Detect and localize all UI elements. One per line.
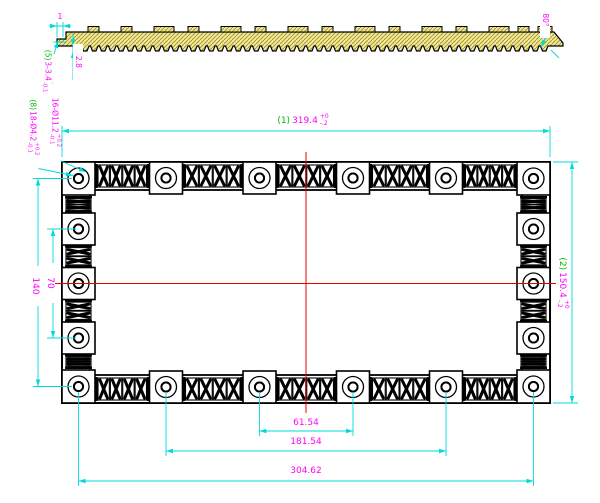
section-profile [57, 32, 563, 51]
dim-side-hole-span: 140 [30, 266, 40, 306]
boss [430, 162, 463, 194]
dim-bottom-hole-spacing: 61.54 [266, 417, 346, 430]
dim-chamfer-angle: 80° [540, 2, 550, 38]
dim-ref-1: (1) [277, 117, 290, 126]
callout-counterbore: 16-Ø11.2 +0.2-0.1 [50, 84, 61, 162]
section-tab [389, 27, 400, 33]
section-tab [121, 27, 132, 33]
section-tab [518, 27, 529, 33]
section-tab [456, 27, 467, 33]
section-view [57, 27, 563, 52]
section-tab [88, 27, 99, 33]
dim-bottom-span-outer: 304.62 [266, 465, 346, 478]
section-tab [188, 27, 199, 33]
callout-through-hole: (8) 18-Ø4.2 +0.2-0.1 [28, 85, 39, 171]
dim-side-hole-spacing: 70 [45, 263, 55, 303]
section-tab [288, 27, 308, 33]
boss [243, 162, 276, 194]
boss [150, 162, 183, 194]
drawing-sheet: (1) 319.4 +0-.2 (2) 150.4 +0-.2 140 70 6… [0, 0, 600, 503]
dim-overall-width: (1) 319.4 +0-.2 [253, 114, 353, 128]
section-tab [422, 27, 442, 33]
dim-bottom-span-inner: 181.54 [266, 436, 346, 449]
section-tab [489, 27, 509, 33]
dim-section-end: 1 [48, 11, 72, 22]
dim-overall-height: (2) 150.4 +0-.2 [556, 233, 568, 333]
boss [517, 162, 550, 195]
dim-section-thickness: 2.8 [73, 44, 83, 80]
section-tab [255, 27, 266, 33]
boss [517, 322, 550, 354]
boss [337, 162, 370, 194]
section-tab [221, 27, 241, 33]
section-tab [154, 27, 174, 33]
boss [517, 213, 550, 245]
section-tab [355, 27, 375, 33]
dim-ref-2: (2) [558, 257, 567, 270]
section-tab [322, 27, 333, 33]
